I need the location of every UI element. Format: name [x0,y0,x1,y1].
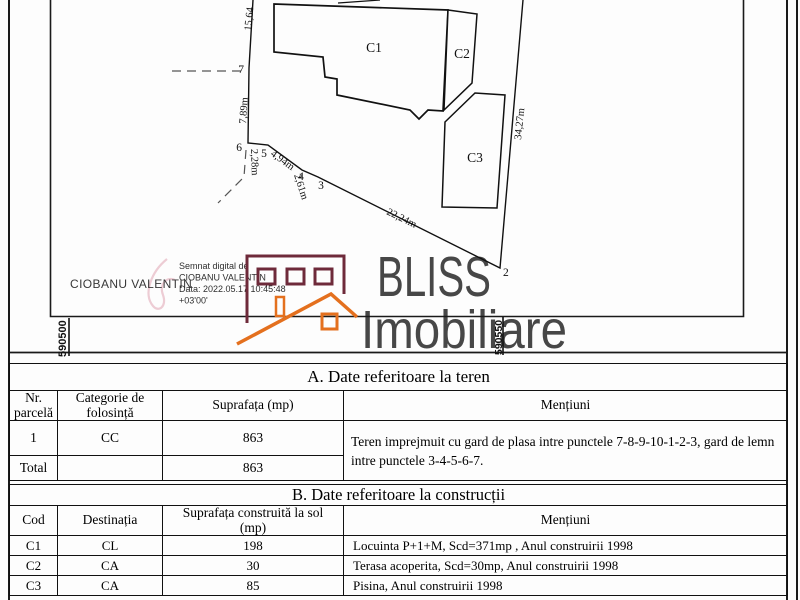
cell-supra-c1: 198 [163,536,344,556]
point-5-label: 5 [261,148,267,160]
measure-segment-3-2: 22,24m [385,207,418,231]
logo-window-2 [287,269,304,284]
table-a-header-row: Nr. parcelă Categorie de folosință Supra… [10,391,788,421]
header-mentiuni-constructii: Mențiuni [344,506,788,536]
table-b-row-c1: C1 CL 198 Locuinta P+1+M, Scd=371mp , An… [10,536,788,556]
cell-supra-c3: 85 [163,576,344,596]
table-a-title: A. Date referitoare la teren [10,364,788,391]
stamp-line-2: CIOBANU VALENTIN [179,273,266,283]
cell-cod-c2: C2 [10,556,58,576]
measure-segment-7-6: 7,89m [238,97,251,124]
table-b-row-c3: C3 CA 85 Pisina, Anul construirii 1998 [10,576,788,596]
table-b-header-row: Cod Destinația Suprafața construită la s… [10,506,788,536]
site-plan-drawing: BLISS Imobiliare CIOBANU VALENTIN Semnat… [0,0,800,362]
cell-dest-c2: CA [58,556,163,576]
cell-total-suprafata: 863 [163,456,344,481]
header-categorie-line1: Categorie de [58,391,162,406]
point-7-label: 7 [238,64,244,76]
building-c2-label: C2 [454,46,470,61]
table-a-row-1: 1 CC 863 Teren imprejmuit cu gard de pla… [10,421,788,456]
parcel-boundary-top-cut [338,0,380,3]
cell-mentiuni-c1: Locuinta P+1+M, Scd=371mp , Anul constru… [344,536,788,556]
table-b-row-c2: C2 CA 30 Terasa acoperita, Scd=30mp, Anu… [10,556,788,576]
header-nr-line2: parcelă [10,406,57,421]
cell-mentiuni-c2: Terasa acoperita, Scd=30mp, Anul constru… [344,556,788,576]
header-suprafata-line2: (mp) [163,521,343,536]
header-destinatia: Destinația [58,506,163,536]
measure-segment-5-4: 4,94m [268,149,296,174]
stamp-line-4: +03'00' [179,296,208,306]
cadastral-plan-page: BLISS Imobiliare CIOBANU VALENTIN Semnat… [0,0,800,600]
watermark-subtitle: Imobiliare [361,300,567,360]
header-categorie-line2: folosință [58,406,162,421]
point-6-label: 6 [236,142,242,154]
header-suprafata-line1: Suprafața construită la sol [163,506,343,521]
header-categorie: Categorie de folosință [58,391,163,421]
cell-mentiuni-teren: Teren imprejmuit cu gard de plasa intre … [344,421,788,481]
cell-total-label: Total [10,456,58,481]
cell-categorie: CC [58,421,163,456]
measure-top-segment: 15,64 [243,6,256,31]
logo-door [276,297,284,316]
point-3-label: 3 [318,180,324,192]
neighbour-limit-dashed-bottom [218,150,246,203]
header-nr-parcela: Nr. parcelă [10,391,58,421]
cell-dest-c3: CA [58,576,163,596]
cell-supra-c2: 30 [163,556,344,576]
table-a-title-row: A. Date referitoare la teren [10,364,788,391]
building-c3-label: C3 [467,150,483,165]
measure-right-segment: 34,27m [513,108,527,141]
stamp-line-1: Semnat digital de [179,261,249,271]
table-b-title: B. Date referitoare la construcții [10,485,788,506]
cell-suprafata-1: 863 [163,421,344,456]
cell-cod-c3: C3 [10,576,58,596]
table-constructii: B. Date referitoare la construcții Cod D… [9,484,788,596]
header-suprafata-teren: Suprafața (mp) [163,391,344,421]
grid-label-left: 590500 [57,320,69,357]
table-b-title-row: B. Date referitoare la construcții [10,485,788,506]
grid-label-right: 590550 [493,320,505,355]
cell-dest-c1: CL [58,536,163,556]
cell-cod-c1: C1 [10,536,58,556]
header-mentiuni-teren: Mențiuni [344,391,788,421]
cell-total-empty [58,456,163,481]
logo-window-3 [315,269,332,284]
signer-name: CIOBANU VALENTIN [70,277,192,291]
measure-segment-4-3: 2,61m [291,173,310,202]
cell-mentiuni-c3: Pisina, Anul construirii 1998 [344,576,788,596]
header-suprafata-construita: Suprafața construită la sol (mp) [163,506,344,536]
logo-house [237,256,357,344]
measure-segment-6-5: 2,28m [248,149,260,176]
building-c1-label: C1 [366,40,382,55]
building-c1-outline [274,4,448,119]
header-cod: Cod [10,506,58,536]
cell-nr-parcela: 1 [10,421,58,456]
header-nr-line1: Nr. [10,391,57,406]
cadastral-tables: A. Date referitoare la teren Nr. parcelă… [9,363,787,596]
point-2-label: 2 [503,267,509,279]
table-teren: A. Date referitoare la teren Nr. parcelă… [9,363,788,481]
logo-roof [237,294,357,344]
